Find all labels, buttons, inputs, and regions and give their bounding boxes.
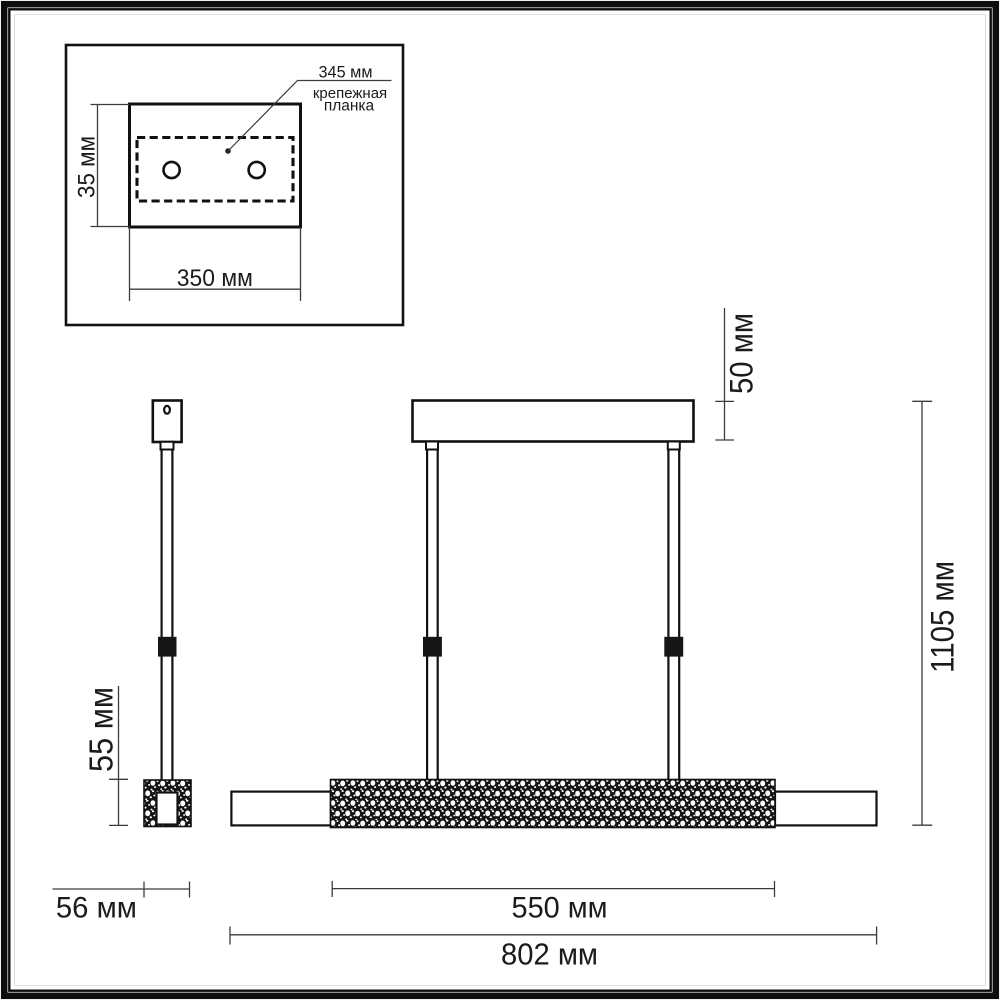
svg-text:50 мм: 50 мм [724, 313, 760, 394]
svg-text:55 мм: 55 мм [84, 687, 121, 772]
svg-text:56 мм: 56 мм [56, 892, 137, 925]
svg-text:350 мм: 350 мм [177, 265, 253, 292]
svg-text:345 мм: 345 мм [319, 63, 373, 82]
svg-text:802 мм: 802 мм [501, 938, 598, 972]
svg-text:1105 мм: 1105 мм [925, 561, 961, 673]
svg-text:550 мм: 550 мм [512, 892, 608, 925]
svg-text:35 мм: 35 мм [74, 136, 101, 198]
svg-text:планка: планка [324, 98, 375, 115]
